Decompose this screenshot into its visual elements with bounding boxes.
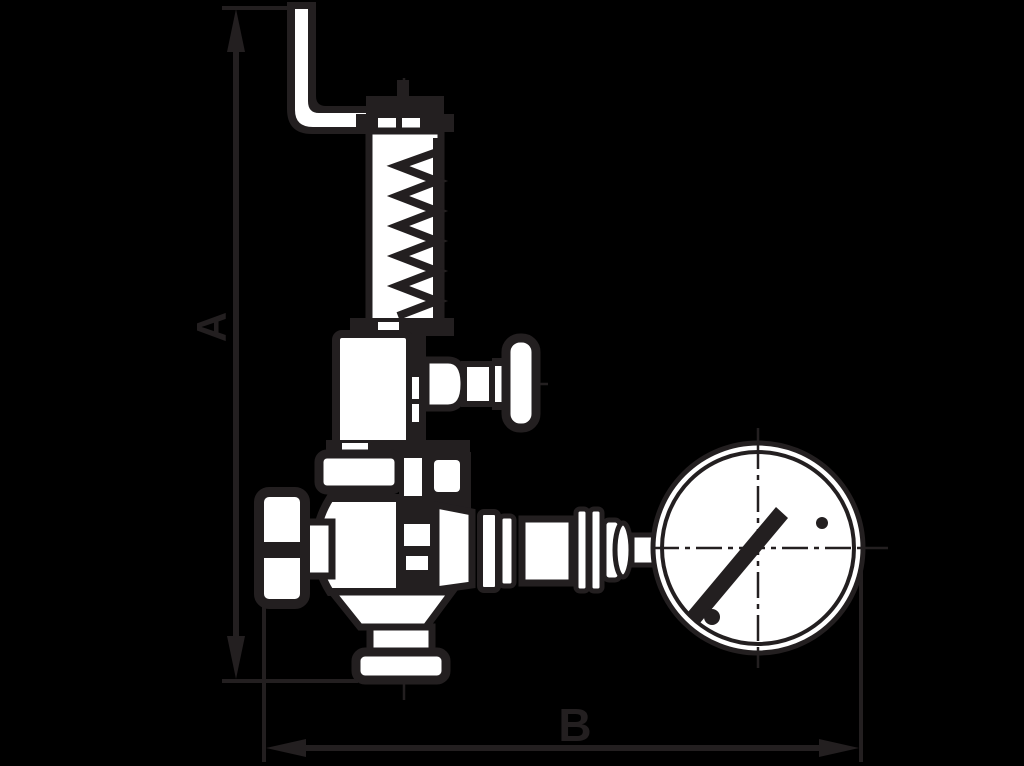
bonnet-stem-mark-2 [412, 404, 419, 422]
handwheel-knob [506, 338, 536, 428]
screw-block [366, 96, 444, 116]
handwheel-collar-slit [495, 366, 502, 402]
dimension-label-b: B [558, 699, 591, 751]
screw-slit-left [378, 118, 396, 128]
outlet-coupling-block [522, 519, 572, 583]
dimension-a-arrow-up [227, 9, 245, 52]
dimension-b-arrow-right [819, 739, 859, 757]
drain-funnel [332, 592, 452, 627]
spring-housing [350, 131, 454, 336]
outlet-lens [615, 523, 631, 577]
foot-flange [356, 652, 446, 680]
side-handwheel-assembly [426, 338, 536, 428]
union-nut-body [319, 454, 399, 490]
bonnet-body [336, 334, 410, 452]
body-right-shell [436, 505, 472, 590]
pressure-gauge [653, 443, 863, 653]
adjusting-screw-assembly [356, 80, 454, 132]
handwheel-boss [426, 360, 464, 408]
body-center-detail-2 [406, 556, 428, 570]
body-center-detail-1 [404, 524, 430, 546]
technical-drawing-canvas: A B [0, 0, 1024, 766]
outlet-train [480, 509, 654, 591]
bonnet-flange-slit [342, 443, 368, 450]
outlet-ring-2 [500, 516, 514, 586]
dimension-label-a: A [188, 312, 235, 342]
gauge-dot-upper [816, 517, 828, 529]
valve-body [316, 496, 472, 594]
bonnet-stem-mark-1 [412, 377, 419, 399]
outlet-flange-1 [576, 509, 588, 591]
screw-slit-right [402, 118, 420, 128]
handwheel-stem [464, 364, 492, 404]
outlet-flange-2 [590, 509, 602, 591]
dimension-b-arrow-left [266, 739, 306, 757]
gauge-dot-lower [704, 609, 720, 625]
outlet-ring-1 [480, 512, 498, 590]
valve-dimension-drawing: A B [0, 0, 1024, 766]
foot-assembly [332, 592, 452, 680]
inlet-cap-band [262, 542, 302, 558]
dimension-a-arrow-down [227, 636, 245, 679]
union-right-slit [434, 460, 460, 492]
